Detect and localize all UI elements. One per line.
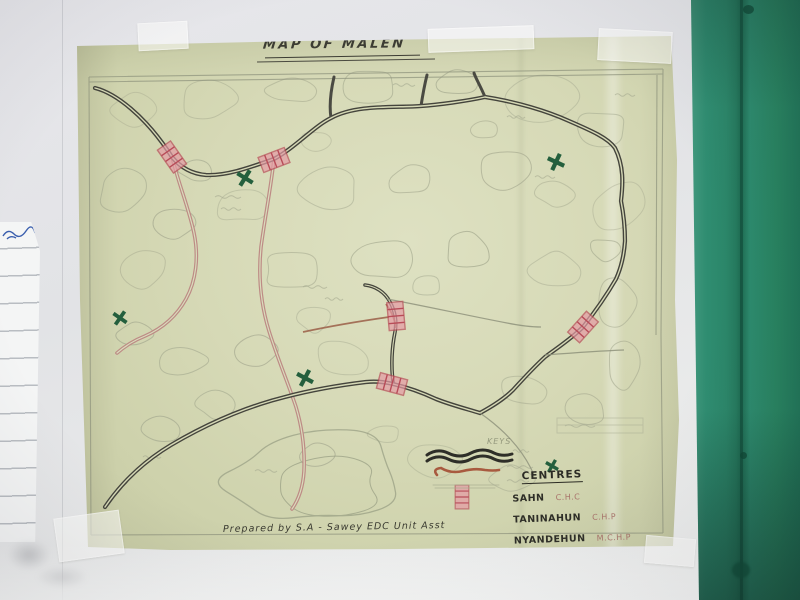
legend-doubleline-icon [427, 450, 512, 456]
handwriting-scribble [1, 225, 37, 243]
keys-heading: KEYS [487, 437, 511, 446]
paint-speck [743, 5, 754, 14]
legend-entry: SAHN C.H.C [512, 481, 663, 505]
legend-redline-icon [435, 468, 499, 475]
health-cross-icon [109, 307, 131, 329]
legend-entry-name: NYANDEHUN [514, 533, 586, 546]
door-frame-shading [688, 0, 800, 600]
map-title: MAP OF MALEN [262, 36, 406, 52]
legend-symbols [427, 450, 512, 488]
legend-bridge-icon [455, 485, 469, 509]
faint-table-box [557, 418, 643, 433]
legend-heading: CENTRES [521, 468, 582, 484]
health-cross-icon [544, 150, 568, 174]
legend-entry: TANINAHUN C.H.P [513, 502, 664, 526]
wall-smudge [8, 540, 50, 570]
bridge-icon [376, 373, 407, 396]
village-blob-group [100, 70, 645, 491]
road-dark-group [95, 73, 625, 507]
road-red-overlay [303, 304, 396, 332]
wall-smudge [36, 566, 88, 588]
wall-seam [62, 0, 63, 600]
health-cross-icon [293, 366, 317, 390]
legend-entry-type: C.H.C [555, 492, 580, 502]
tape-piece [644, 535, 696, 567]
tape-piece [137, 21, 188, 52]
legend-entry: NYANDEHUN M.C.H.P [513, 523, 664, 547]
ruled-note-paper-scrap [0, 222, 40, 542]
map-paper: MAP OF MALEN KEYS CENTRES SAHN C.H.C TAN… [75, 35, 681, 551]
bridge-icon [387, 301, 405, 330]
paint-speck [740, 452, 747, 459]
tape-piece [53, 510, 124, 563]
paint-speck [732, 562, 750, 578]
bridge-icon [258, 148, 290, 173]
tape-piece [597, 28, 673, 64]
tape-piece [428, 25, 535, 53]
door-frame [688, 0, 800, 600]
legend-entry-type: M.C.H.P [597, 533, 632, 543]
wall-photo: MAP OF MALEN KEYS CENTRES SAHN C.H.C TAN… [0, 0, 800, 600]
legend-doubleline-icon [427, 456, 512, 462]
legend-entry-type: C.H.P [592, 512, 616, 522]
pond-outline [218, 430, 395, 519]
legend-entry-name: SAHN [512, 493, 544, 505]
legend-entry-name: TANINAHUN [513, 512, 581, 525]
